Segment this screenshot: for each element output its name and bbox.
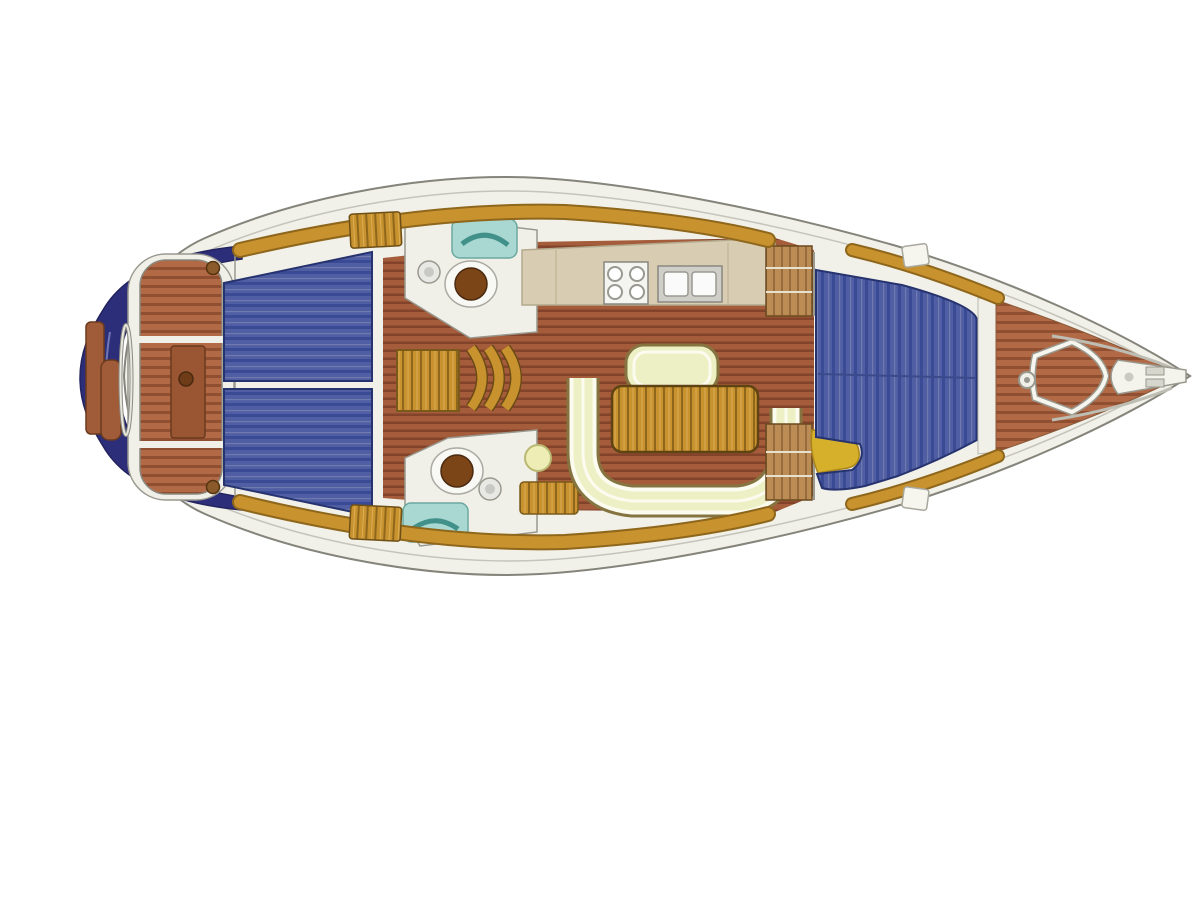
winch-port xyxy=(207,262,220,275)
winch-starboard xyxy=(207,481,220,494)
cockpit-bench-divider-top xyxy=(138,336,224,343)
stove-burner-3 xyxy=(608,285,622,299)
stool xyxy=(525,445,551,471)
salon-side-locker xyxy=(520,482,578,514)
wardrobe-starboard xyxy=(766,424,812,500)
boat-floor-plan xyxy=(0,0,1200,900)
head-starboard-sink-bowl xyxy=(485,484,495,494)
anchor-roller-port xyxy=(1146,367,1164,375)
bow-cleat xyxy=(1125,373,1134,382)
dorade-box-starboard xyxy=(902,486,930,510)
deck-hatch-starboard xyxy=(349,505,402,542)
stove-burner-2 xyxy=(630,267,644,281)
boat-floor-plan-canvas xyxy=(0,0,1200,900)
salon-table xyxy=(612,386,758,452)
sink-bowl-right xyxy=(692,272,716,296)
sink-bowl-left xyxy=(664,272,688,296)
head-starboard-toilet-seat xyxy=(441,455,473,487)
stove-burner-4 xyxy=(630,285,644,299)
head-port-toilet-seat xyxy=(455,268,487,300)
wardrobe-port xyxy=(766,246,812,316)
deck-hatch-port xyxy=(349,212,402,249)
galley xyxy=(522,238,775,305)
cockpit-table xyxy=(171,346,205,438)
head-port-shower xyxy=(452,219,517,258)
forepeak-bulkhead xyxy=(978,298,996,454)
helm-pedestal xyxy=(179,372,193,386)
head-port-sink-bowl xyxy=(424,267,434,277)
cockpit-bench-divider-bottom xyxy=(138,441,224,448)
helm-seat xyxy=(101,360,121,440)
anchor-roller-starboard xyxy=(1146,379,1164,387)
stove-burner-1 xyxy=(608,267,622,281)
dorade-box-port xyxy=(902,243,930,267)
chart-table xyxy=(397,350,459,411)
windlass-gypsy xyxy=(1024,377,1030,383)
